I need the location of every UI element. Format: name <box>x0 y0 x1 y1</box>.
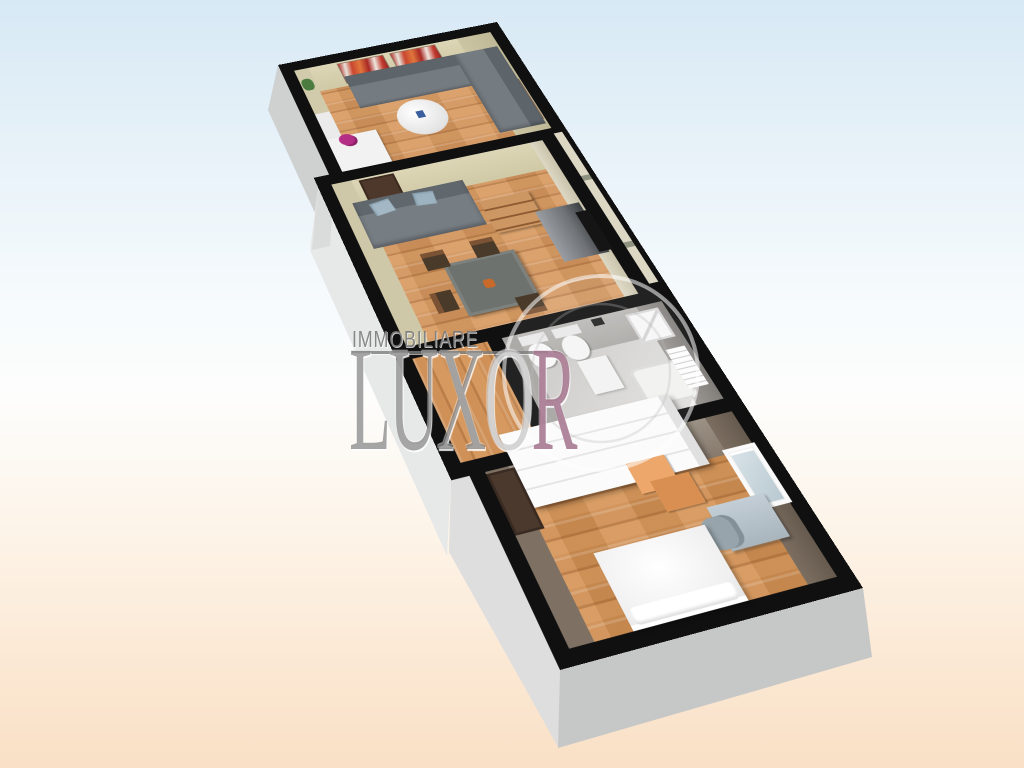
logo-letter-l: L <box>349 316 389 482</box>
floor-plan-render: IMMOBILIARE LUXOR <box>0 0 1024 768</box>
logo-letter-u: U <box>389 316 437 482</box>
watermark-logo-text: LUXOR <box>349 324 575 474</box>
logo-letter-r: R <box>531 316 575 482</box>
logo-letter-x: X <box>436 316 484 482</box>
logo-letter-o: O <box>484 316 532 482</box>
